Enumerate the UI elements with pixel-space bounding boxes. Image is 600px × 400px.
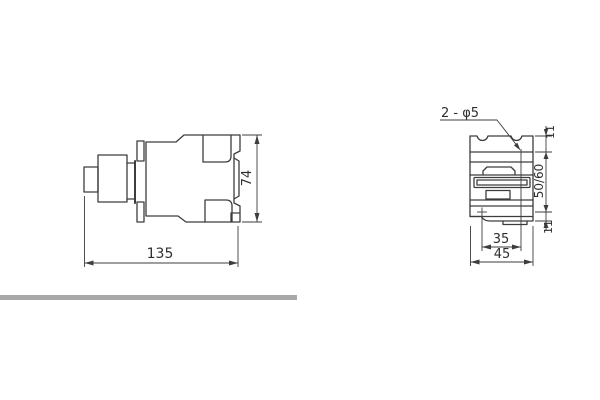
dim-arrow-rail-top	[544, 152, 549, 159]
side-view: 135 74	[84, 135, 262, 267]
side-view-interior-bottom	[205, 200, 232, 222]
dim-arrow-top	[255, 135, 260, 144]
dim-side-height: 74	[240, 135, 262, 222]
dim-label-135: 135	[147, 246, 174, 262]
dim-label-45: 45	[494, 247, 511, 262]
dim-arrow-left	[471, 260, 480, 265]
side-view-front-body	[98, 155, 127, 202]
front-view-section-lines	[470, 152, 533, 217]
dim-arrow-bottom	[255, 213, 260, 222]
dim-label-bottom-11: 11	[542, 220, 555, 234]
callout-arrow	[514, 143, 521, 151]
dimension-drawing: 135 74 2 - φ5	[0, 0, 600, 400]
side-view-clamp-top	[137, 141, 144, 161]
hole-callout: 2 - φ5	[440, 106, 521, 151]
dim-arrow-right	[229, 261, 238, 266]
callout-leader	[440, 120, 519, 148]
dim-front-vertical-stack: 11 50/60 11	[532, 125, 557, 234]
dim-label-50-60: 50/60	[532, 164, 546, 199]
dim-arrow-rail-bottom	[544, 205, 549, 212]
dim-arrow-right	[524, 260, 533, 265]
side-view-coil-block	[84, 167, 98, 192]
front-view: 2 - φ5 35 45 11 50/60	[440, 106, 557, 266]
side-view-main-body	[146, 135, 240, 222]
divider-bar	[0, 295, 297, 300]
dim-label-top-11: 11	[544, 125, 557, 139]
front-view-tab	[483, 167, 515, 175]
front-view-body	[470, 136, 533, 221]
front-view-label-window	[486, 191, 510, 200]
dim-arrow-right	[512, 245, 521, 250]
dim-label-74: 74	[240, 170, 255, 187]
side-view-interior-top	[203, 135, 231, 162]
side-view-neck	[127, 163, 135, 199]
front-view-nameplate-outer	[474, 178, 530, 188]
dim-arrow-left	[482, 245, 491, 250]
dim-side-width: 135	[85, 196, 239, 267]
dim-arrow-left	[85, 261, 94, 266]
side-view-clamp-bottom	[137, 202, 144, 222]
hole-callout-label: 2 - φ5	[441, 106, 479, 121]
front-view-nameplate-inner	[477, 180, 527, 185]
dim-label-35: 35	[493, 232, 510, 247]
